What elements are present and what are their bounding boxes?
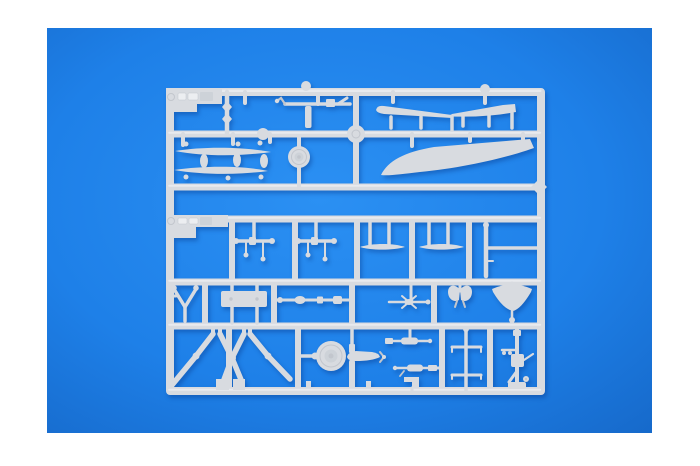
- sprue-photo: [0, 0, 700, 466]
- part-small-wheel: [288, 146, 310, 168]
